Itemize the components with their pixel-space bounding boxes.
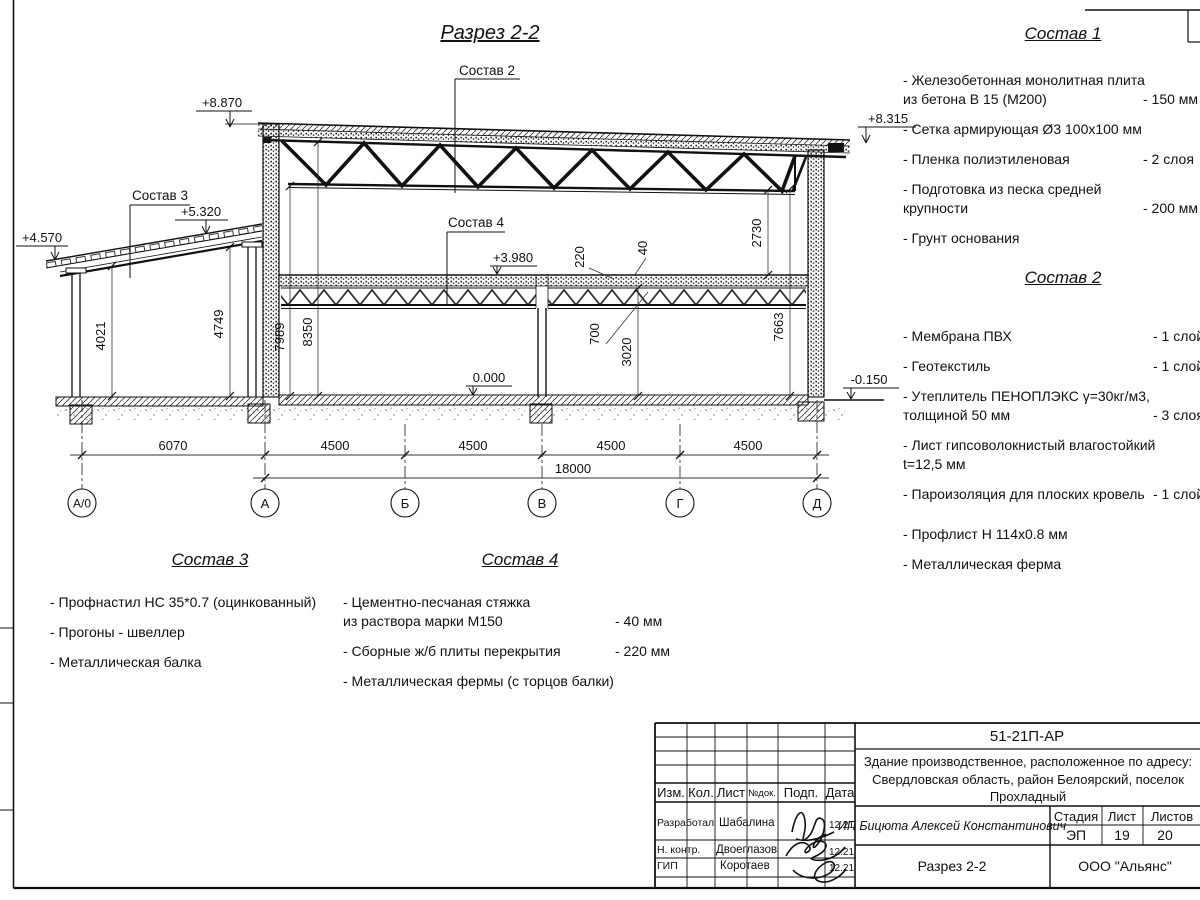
stage-value: ЭП	[1066, 827, 1086, 843]
col-data: Дата	[826, 785, 856, 800]
col-list: Лист	[717, 785, 745, 800]
axis-a0: А/0	[73, 497, 91, 511]
axis-g: Г	[676, 496, 683, 511]
sheet-value: 19	[1114, 827, 1130, 843]
ground	[56, 395, 884, 424]
elevation-0000: 0.000	[473, 370, 506, 385]
dim-4500-2: 4500	[459, 438, 488, 453]
doc-number: 51-21П-АР	[990, 728, 1064, 745]
dim-8350: 8350	[300, 318, 315, 347]
axis-b: Б	[401, 496, 410, 511]
sheet-label: Лист	[1108, 809, 1136, 824]
dim-220: 220	[572, 246, 587, 268]
callout-sostav3: Состав 3	[132, 188, 188, 203]
row2-role: Н. контр.	[657, 844, 700, 856]
elevation-8315: +8.315	[868, 111, 908, 126]
axis-v: В	[538, 496, 547, 511]
col-kol: Кол.	[688, 785, 714, 800]
vertical-dimensions	[112, 142, 790, 396]
callout-leaders	[130, 79, 520, 305]
axis-a: А	[261, 496, 270, 511]
elevation-m0150: -0.150	[851, 372, 888, 387]
dim-4500-3: 4500	[597, 438, 626, 453]
intermediate-floor	[279, 275, 808, 397]
sheets-label: Листов	[1151, 809, 1193, 824]
drawing-sheet: 4021 4749 7989 8350 700 3020 220 40 2730…	[0, 0, 1200, 900]
callout-sostav4: Состав 4	[448, 215, 504, 230]
bottom-dim-lines	[70, 455, 829, 478]
company-name: ООО "Альянс"	[1078, 858, 1172, 874]
roof-assembly	[258, 123, 850, 157]
dim-6070: 6070	[159, 438, 188, 453]
sheets-value: 20	[1157, 827, 1173, 843]
walls	[263, 124, 824, 397]
dim-4021: 4021	[93, 322, 108, 351]
dim-4749: 4749	[211, 310, 226, 339]
dim-7989: 7989	[272, 323, 287, 352]
dim-7663: 7663	[771, 313, 786, 342]
elevation-5320: +5.320	[181, 204, 221, 219]
col-izm: Изм.	[657, 785, 685, 800]
dim-700: 700	[587, 323, 602, 345]
elevation-4570: +4.570	[22, 230, 62, 245]
dim-40: 40	[635, 241, 650, 255]
bottom-dim-ticks	[78, 451, 821, 482]
row3-role: ГИП	[657, 860, 678, 872]
client-name: ИП Бицюта Алексей Константинович	[838, 819, 1067, 833]
callout-sostav2: Состав 2	[459, 63, 515, 78]
row3-name: Коротаев	[720, 860, 770, 872]
dim-4500-1: 4500	[321, 438, 350, 453]
row3-date: 12.21	[829, 863, 854, 874]
section-drawing: 4021 4749 7989 8350 700 3020 220 40 2730…	[0, 0, 1200, 900]
dim-3020: 3020	[619, 338, 634, 367]
axis-bubbles	[68, 489, 831, 517]
row2-name: Двоеглазов	[716, 844, 777, 856]
elevation-3980: +3.980	[493, 250, 533, 265]
dim-18000: 18000	[555, 461, 591, 476]
axis-d: Д	[813, 496, 822, 511]
row1-role: Разработал	[657, 817, 714, 829]
col-ndok: №док.	[748, 788, 776, 799]
stage-label: Стадия	[1054, 809, 1098, 824]
dim-2730: 2730	[749, 219, 764, 248]
row1-name: Шабалина	[719, 817, 775, 829]
section-name: Разрез 2-2	[918, 858, 987, 874]
dim-4500-4: 4500	[734, 438, 763, 453]
col-podp: Подп.	[784, 785, 819, 800]
elevation-8870: +8.870	[202, 95, 242, 110]
